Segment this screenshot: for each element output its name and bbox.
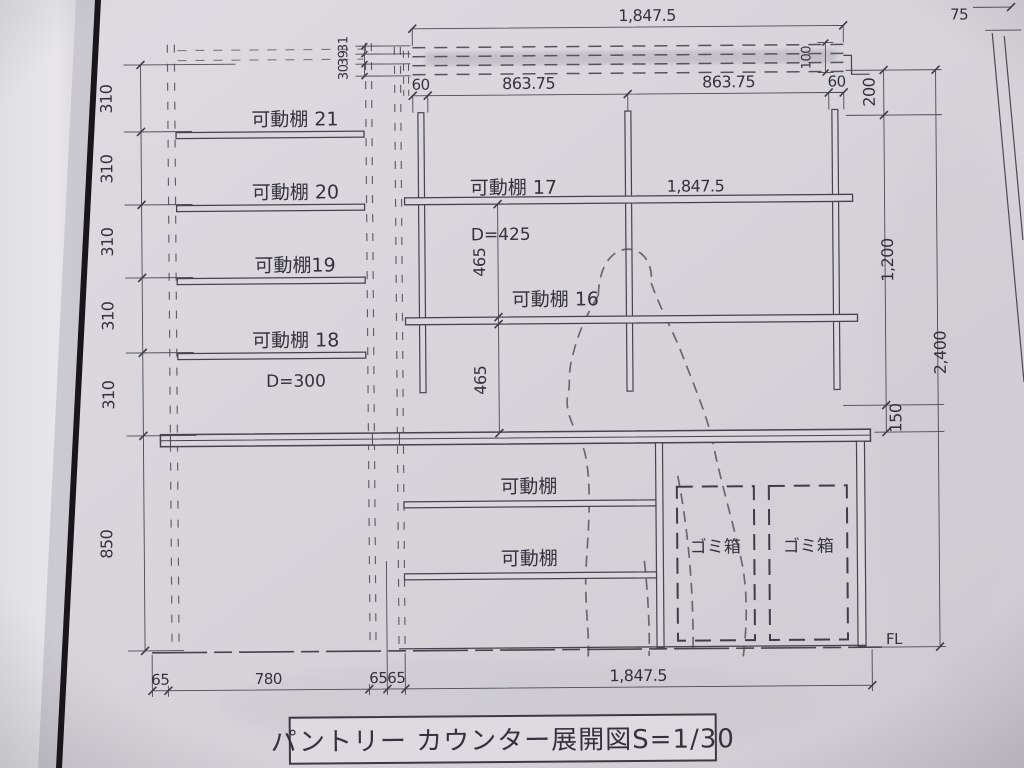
photo-vignette (0, 0, 1024, 768)
photographed-drawing-sheet: 1,847.5 31 39 30 100 60 863.75 863.75 60… (0, 0, 1024, 768)
